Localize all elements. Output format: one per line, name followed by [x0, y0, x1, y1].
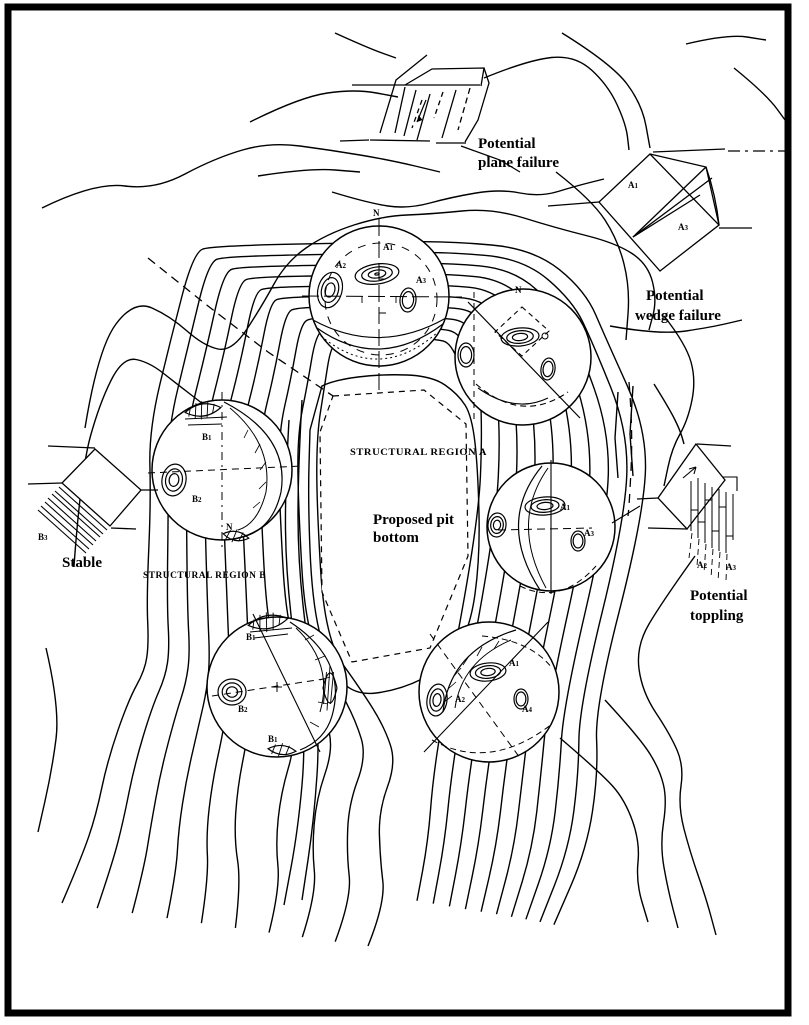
- svg-text:A2: A2: [455, 694, 466, 704]
- svg-text:A4: A4: [522, 704, 533, 714]
- svg-text:Potential: Potential: [478, 136, 536, 152]
- svg-text:toppling: toppling: [690, 608, 744, 624]
- svg-text:B2: B2: [238, 704, 248, 714]
- svg-text:B2: B2: [192, 494, 202, 504]
- svg-text:B1: B1: [268, 734, 278, 744]
- svg-text:A2: A2: [697, 560, 708, 570]
- svg-text:B1: B1: [246, 632, 256, 642]
- svg-text:STRUCTURAL REGION B: STRUCTURAL REGION B: [143, 571, 266, 581]
- svg-text:B1: B1: [202, 432, 212, 442]
- svg-text:A1: A1: [560, 502, 571, 512]
- svg-text:bottom: bottom: [373, 530, 419, 546]
- svg-text:B3: B3: [38, 532, 48, 542]
- svg-text:N: N: [226, 522, 233, 532]
- svg-text:A3: A3: [726, 562, 737, 572]
- svg-text:A3: A3: [678, 222, 689, 232]
- svg-text:A3: A3: [416, 275, 427, 285]
- svg-text:STRUCTURAL REGION A: STRUCTURAL REGION A: [350, 448, 487, 458]
- svg-text:wedge failure: wedge failure: [635, 308, 721, 324]
- svg-text:Potential: Potential: [690, 588, 748, 604]
- svg-text:Potential: Potential: [646, 288, 704, 304]
- svg-text:A1: A1: [509, 658, 520, 668]
- svg-text:A1: A1: [383, 242, 394, 252]
- svg-text:N: N: [373, 208, 380, 218]
- svg-text:A3: A3: [584, 528, 595, 538]
- svg-text:A1: A1: [628, 180, 639, 190]
- svg-text:A2: A2: [336, 260, 347, 270]
- svg-text:Stable: Stable: [62, 555, 102, 571]
- svg-text:Proposed pit: Proposed pit: [373, 512, 454, 528]
- svg-text:plane failure: plane failure: [478, 155, 559, 171]
- svg-text:N: N: [515, 285, 522, 295]
